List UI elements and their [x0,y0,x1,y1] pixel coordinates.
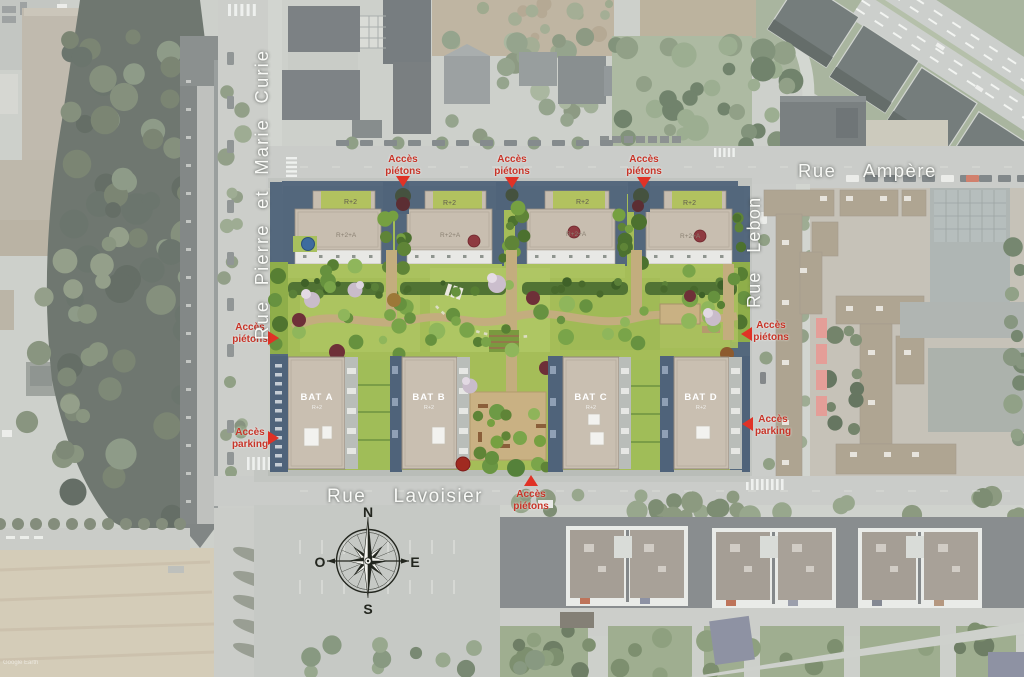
svg-text:Rue Ampère: Rue Ampère [798,160,937,181]
svg-text:R+2: R+2 [424,405,434,411]
svg-text:parking: parking [232,439,268,450]
svg-text:R+2: R+2 [443,200,456,207]
svg-text:Rue Lebon: Rue Lebon [744,197,764,308]
svg-text:piétons: piétons [494,166,530,177]
svg-text:S: S [363,601,372,617]
svg-text:Google Earth: Google Earth [3,660,38,666]
svg-text:piétons: piétons [513,501,549,512]
svg-text:E: E [410,554,419,570]
svg-text:R+2: R+2 [696,405,706,411]
svg-text:Accès: Accès [629,154,659,165]
svg-text:piétons: piétons [753,332,789,343]
svg-text:Accès: Accès [756,320,786,331]
svg-text:R+2+A: R+2+A [440,232,461,239]
svg-text:R+2: R+2 [312,405,322,411]
svg-text:R+2+A: R+2+A [680,233,701,240]
svg-text:Accès: Accès [497,154,527,165]
svg-text:Rue Lavoisier: Rue Lavoisier [327,486,483,507]
svg-text:piétons: piétons [626,166,662,177]
svg-text:R+2+A: R+2+A [566,231,587,238]
svg-text:R+2: R+2 [344,199,357,206]
svg-text:R+2+A: R+2+A [336,232,357,239]
svg-text:Accès: Accès [388,154,418,165]
svg-text:R+2: R+2 [576,199,589,206]
svg-text:Rue Pierre et Marie Curie: Rue Pierre et Marie Curie [251,49,272,340]
svg-text:piétons: piétons [385,166,421,177]
svg-text:parking: parking [755,426,791,437]
svg-text:Accès: Accès [235,427,265,438]
svg-text:Accès: Accès [758,414,788,425]
svg-text:BAT A: BAT A [301,392,334,403]
svg-text:N: N [363,504,373,520]
svg-text:BAT C: BAT C [574,392,607,403]
svg-text:BAT B: BAT B [412,392,445,403]
svg-text:BAT D: BAT D [684,392,717,403]
svg-text:O: O [315,554,326,570]
svg-text:R+2: R+2 [586,405,596,411]
svg-text:R+2: R+2 [683,200,696,207]
svg-text:Accès: Accès [516,489,546,500]
